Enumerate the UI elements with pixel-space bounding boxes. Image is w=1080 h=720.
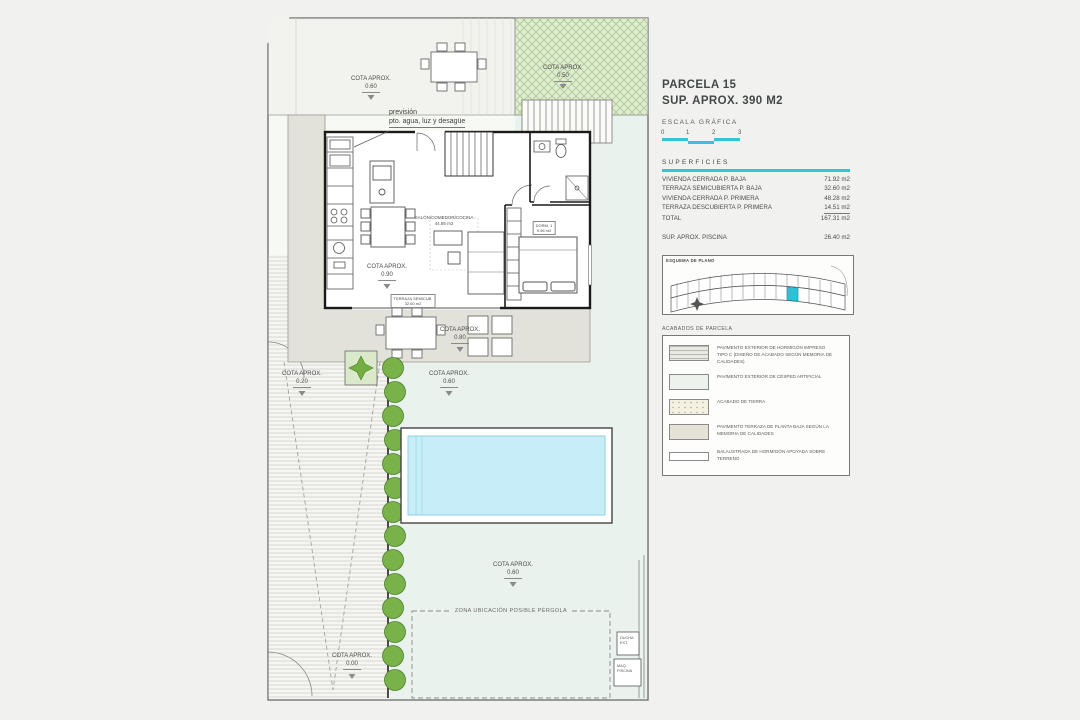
table-row: VIVIENDA CERRADA P. BAJA 71.92 m2 [662, 175, 850, 185]
legend-item: PAVIMENTO EXTERIOR DE CÉSPED ARTIFICIAL [669, 374, 843, 390]
scale-tick: 1 [686, 130, 689, 136]
prevision-line1: previsión [389, 109, 417, 116]
cota-caption: COTA APROX. [429, 371, 469, 377]
terraza-label: TERRAZA SEMICUB. 32.60 m2 [391, 294, 436, 308]
keyplan-title: ESQUEMA DE PLANO [666, 258, 715, 263]
cota-caption: COTA APROX. [351, 76, 391, 82]
swatch-tierra [669, 399, 709, 415]
parcel-title: PARCELA 15 [662, 78, 860, 94]
finishes-legend: PAVIMENTO EXTERIOR DE HORMIGÓN IMPRESO T… [662, 335, 850, 476]
ducha-label: DUCHA EXT. [620, 636, 634, 646]
cota-label-garden-mid: COTA APROX. 0.60 [429, 371, 469, 388]
cota-value: 0.20 [293, 379, 311, 388]
row-value: 14.51 m2 [824, 203, 850, 214]
legend-item: BALAUSTRADA DE HORMIGÓN APOYADA SOBRE TE… [669, 449, 843, 462]
legend-text: BALAUSTRADA DE HORMIGÓN APOYADA SOBRE TE… [717, 449, 835, 462]
table-row-total: TOTAL 167.31 m2 [662, 214, 850, 224]
swatch-cesped-artificial [669, 374, 709, 390]
cota-label-lawn: COTA APROX. 0.60 [493, 562, 533, 579]
keyplan-drawing [663, 256, 853, 314]
graphic-scale-bar: 0 1 2 3 [662, 130, 752, 146]
table-row: TERRAZA SEMICUBIERTA P. BAJA 32.60 m2 [662, 184, 850, 194]
row-value: 71.92 m2 [824, 175, 850, 185]
cota-value: 0.60 [440, 379, 458, 388]
cota-value: 0.80 [451, 335, 469, 344]
row-label: TOTAL [662, 214, 681, 224]
maq-line1: MAQ. [617, 664, 627, 668]
salon-label: SALÓN/COMEDOR/COCINA 44.85 m2 [415, 215, 474, 227]
table-row-piscina: SUP. APROX. PISCINA 26.40 m2 [662, 233, 850, 243]
cota-value: 0.50 [554, 73, 572, 82]
cota-label-grass: COTA APROX. 0.50 [543, 65, 583, 82]
cota-caption: COTA APROX. [440, 327, 480, 333]
ducha-line2: EXT. [620, 641, 628, 645]
legend-text: PAVIMENTO EXTERIOR DE CÉSPED ARTIFICIAL [717, 374, 835, 381]
prevision-label: previsión pto. agua, luz y desagüe [389, 108, 465, 128]
info-panel: PARCELA 15 SUP. APROX. 390 M2 ESCALA GRÁ… [662, 78, 860, 476]
scale-caption: ESCALA GRÁFICA [662, 119, 860, 126]
planter [345, 351, 377, 385]
legend-item: PAVIMENTO TERRAZA DE PLANTA BAJA SEGÚN L… [669, 424, 843, 440]
table-row: VIVIENDA CERRADA P. PRIMERA 48.28 m2 [662, 194, 850, 204]
legend-text: PAVIMENTO TERRAZA DE PLANTA BAJA SEGÚN L… [717, 424, 835, 437]
swatch-balaustrada [669, 452, 709, 461]
keyplan-box: ESQUEMA DE PLANO [662, 255, 854, 315]
table-row: TERRAZA DESCUBIERTA P. PRIMERA 14.51 m2 [662, 203, 850, 214]
cota-caption: COTA APROX. [367, 264, 407, 270]
maq-line2: PISCINA [617, 669, 632, 673]
ducha-line1: DUCHA [620, 636, 634, 640]
cota-caption: COTA APROX. [332, 653, 372, 659]
scale-segment [688, 141, 714, 144]
legend-title: ACABADOS DE PARCELA [662, 326, 860, 332]
cota-value: 0.60 [504, 570, 522, 579]
swatch-hormigon-impreso [669, 345, 709, 361]
cota-value: 0.60 [362, 84, 380, 93]
pool [401, 428, 612, 523]
salon-name: SALÓN/COMEDOR/COCINA [415, 215, 474, 220]
superficies-table: SUPERFICIES VIVIENDA CERRADA P. BAJA 71.… [662, 159, 850, 242]
stairs [445, 132, 493, 176]
cota-caption: COTA APROX. [543, 65, 583, 71]
legend-item: ACABADO DE TIERRA [669, 399, 843, 415]
legend-text: PAVIMENTO EXTERIOR DE HORMIGÓN IMPRESO T… [717, 345, 835, 365]
dorm-area: 9.96 m2 [537, 228, 551, 233]
cota-value: 0.00 [343, 661, 361, 670]
row-label: VIVIENDA CERRADA P. PRIMERA [662, 194, 759, 204]
row-label: TERRAZA SEMICUBIERTA P. BAJA [662, 184, 762, 194]
bedroom-bed [519, 237, 577, 293]
cota-label-interior: COTA APROX. 0.90 [367, 264, 407, 281]
prevision-line2: pto. agua, luz y desagüe [389, 118, 465, 125]
row-value: 26.40 m2 [824, 233, 850, 243]
scale-tick: 3 [738, 130, 741, 136]
row-value: 32.60 m2 [824, 184, 850, 194]
cota-label-gate: COTA APROX. 0.00 [332, 653, 372, 670]
kitchen-island [370, 161, 394, 203]
row-value: 167.31 m2 [821, 214, 850, 224]
cota-caption: COTA APROX. [493, 562, 533, 568]
parcel-subtitle: SUP. APROX. 390 M2 [662, 94, 860, 110]
row-label: SUP. APROX. PISCINA [662, 233, 727, 243]
kitchen-unit [327, 137, 353, 289]
scale-tick: 0 [661, 130, 664, 136]
cota-label-driveway: COTA APROX. 0.20 [282, 371, 322, 388]
dorm-label: DORM. 1 9.96 m2 [533, 221, 556, 235]
cota-value: 0.90 [378, 272, 396, 281]
row-value: 48.28 m2 [824, 194, 850, 204]
swatch-terraza [669, 424, 709, 440]
cota-caption: COTA APROX. [282, 371, 322, 377]
legend-text: ACABADO DE TIERRA [717, 399, 835, 406]
cota-label-terrace: COTA APROX. 0.80 [440, 327, 480, 344]
row-label: TERRAZA DESCUBIERTA P. PRIMERA [662, 203, 772, 214]
dining-set [361, 207, 415, 247]
maq-piscina-label: MAQ. PISCINA [617, 664, 632, 674]
cota-label-upper-terrace: COTA APROX. 0.60 [351, 76, 391, 93]
superficies-rule [662, 169, 850, 172]
salon-area: 44.85 m2 [435, 221, 454, 226]
pergola-zone-label: ZONA UBICACIÓN POSIBLE PÉRGOLA [451, 608, 571, 615]
terraza-area: 32.60 m2 [405, 301, 422, 306]
row-label: VIVIENDA CERRADA P. BAJA [662, 175, 746, 185]
superficies-header: SUPERFICIES [662, 159, 850, 166]
legend-item: PAVIMENTO EXTERIOR DE HORMIGÓN IMPRESO T… [669, 345, 843, 365]
site-plan-page: COTA APROX. 0.60 COTA APROX. 0.50 previs… [0, 0, 1080, 720]
pergola-text: ZONA UBICACIÓN POSIBLE PÉRGOLA [455, 608, 567, 614]
scale-tick: 2 [712, 130, 715, 136]
